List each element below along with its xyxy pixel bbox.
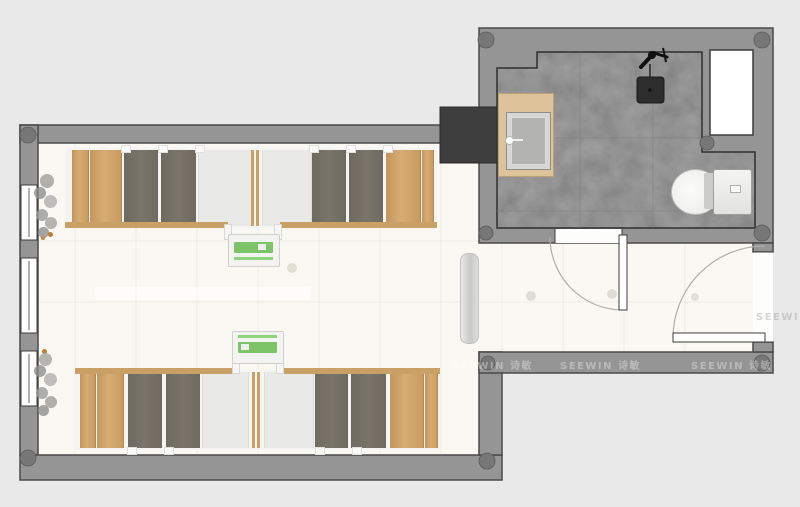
wardrobe-panel (72, 150, 89, 226)
shower-valve (648, 51, 656, 59)
wardrobe-panel (390, 372, 424, 448)
bed-row-bottom (75, 370, 440, 450)
watermark: SEEWIN 诗敏 (691, 357, 772, 372)
wall-connector (315, 447, 325, 455)
column-icon (754, 32, 770, 48)
bed-panel (351, 372, 386, 448)
cabinet-panel (198, 150, 252, 226)
bathroom-door-opening (555, 229, 622, 243)
divider-strip (257, 372, 260, 448)
wall-connector (346, 145, 356, 153)
wardrobe-panel (422, 150, 434, 226)
desk-edge (280, 368, 440, 374)
bed-panel (315, 372, 348, 448)
column-icon (479, 453, 495, 469)
room-bottom-wall (20, 455, 502, 480)
column-icon (20, 127, 36, 143)
right-wall-lower-jamb (753, 342, 773, 352)
divider-strip (252, 372, 255, 448)
divider-strip (251, 150, 254, 226)
shower-head-center (648, 88, 652, 92)
column-icon (479, 226, 493, 240)
column-icon (478, 32, 494, 48)
bed-panel (161, 150, 196, 226)
floor-highlight (95, 287, 310, 300)
bed-panel (124, 150, 158, 226)
wardrobe-panel (80, 372, 96, 448)
wall-connector (164, 447, 174, 455)
bed-row-top (65, 148, 437, 228)
column-icon (700, 136, 714, 150)
entrance-door-leaf (673, 333, 765, 342)
desk-edge (75, 368, 235, 374)
desk-edge (65, 222, 228, 228)
room-top-wall (20, 125, 442, 143)
floor-plan-canvas: SEEWIN 诗敏 SEEWIN 诗敏 SEEWIN 诗敏 SEEWIN 诗敏 (0, 0, 800, 507)
study-desk-bottom (232, 331, 284, 364)
window-shaft-icon (710, 50, 753, 135)
toilet-flush-button (730, 185, 741, 193)
wall-connector (309, 145, 319, 153)
toilet-icon (671, 168, 751, 214)
desk-mat-strip (238, 335, 277, 338)
radiator-icon (460, 253, 479, 344)
wardrobe-panel (386, 150, 421, 226)
wall-connector (158, 145, 168, 153)
desk-mat (234, 242, 273, 253)
divider-strip (256, 150, 259, 226)
wardrobe-panel (425, 372, 438, 448)
desk-edge (280, 222, 437, 228)
window-icon (21, 258, 37, 333)
watermark: SEEWIN 诗敏 (452, 357, 533, 372)
wall-connector (352, 447, 362, 455)
watermark-faint: SEEWIN 诗敏 (756, 308, 800, 323)
column-icon (754, 225, 770, 241)
sink-basin (511, 117, 546, 165)
cabinet-panel (202, 372, 249, 448)
bed-panel (128, 372, 162, 448)
column-icon (20, 450, 36, 466)
bed-panel (349, 150, 383, 226)
wall-connector (195, 145, 205, 153)
entrance-opening (753, 252, 773, 342)
wardrobe-panel (97, 372, 124, 448)
right-wall-upper-jamb (753, 243, 773, 252)
bed-panel (312, 150, 346, 226)
bathroom-door-leaf (619, 235, 627, 310)
desk-mat-slot (241, 344, 249, 350)
wardrobe-panel (90, 150, 122, 226)
cabinet-panel (264, 372, 314, 448)
cabinet-panel (262, 150, 312, 226)
wall-connector (383, 145, 393, 153)
desk-mat-slot (258, 244, 266, 250)
watermark: SEEWIN 诗敏 (560, 357, 641, 372)
bed-panel (166, 372, 200, 448)
plant-icon (34, 172, 62, 242)
desk-mat-strip (234, 257, 273, 260)
study-desk-top (228, 234, 280, 267)
shaft-icon (440, 107, 497, 163)
wall-connector (127, 447, 137, 455)
faucet-spout (513, 139, 523, 141)
wall-connector (121, 145, 131, 153)
plant-icon (34, 348, 62, 418)
